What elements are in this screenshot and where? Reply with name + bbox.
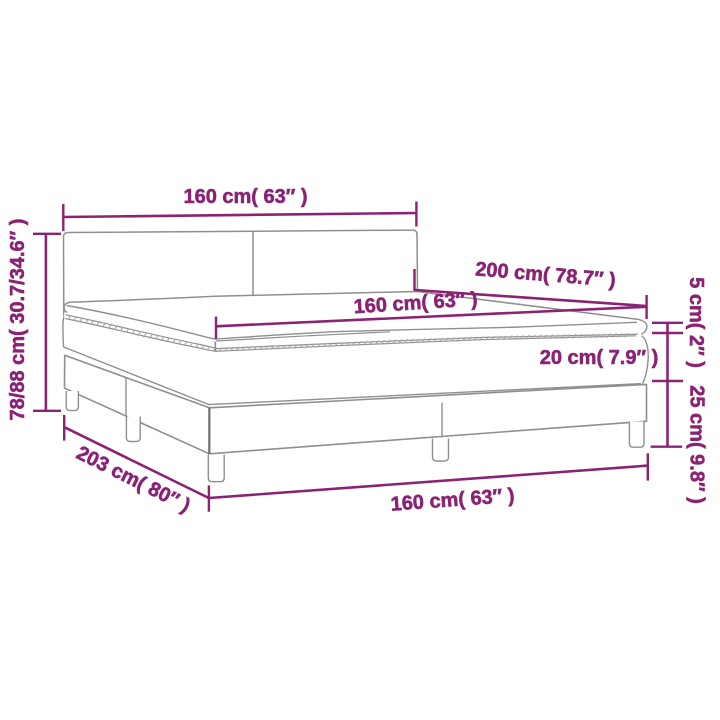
- svg-text:203 cm( 80″ ): 203 cm( 80″ ): [73, 442, 194, 517]
- svg-text:78/88 cm( 30.7/34.6″ ): 78/88 cm( 30.7/34.6″ ): [7, 219, 29, 421]
- svg-text:200 cm( 78.7″ ): 200 cm( 78.7″ ): [474, 258, 616, 291]
- svg-text:160 cm( 63″ ): 160 cm( 63″ ): [390, 485, 515, 516]
- svg-text:20 cm( 7.9″ ): 20 cm( 7.9″ ): [540, 347, 659, 369]
- svg-text:5 cm( 2″ ): 5 cm( 2″ ): [685, 277, 707, 368]
- svg-text:25 cm( 9.8″ ): 25 cm( 9.8″ ): [686, 385, 708, 504]
- svg-text:160 cm( 63″ ): 160 cm( 63″ ): [183, 186, 307, 208]
